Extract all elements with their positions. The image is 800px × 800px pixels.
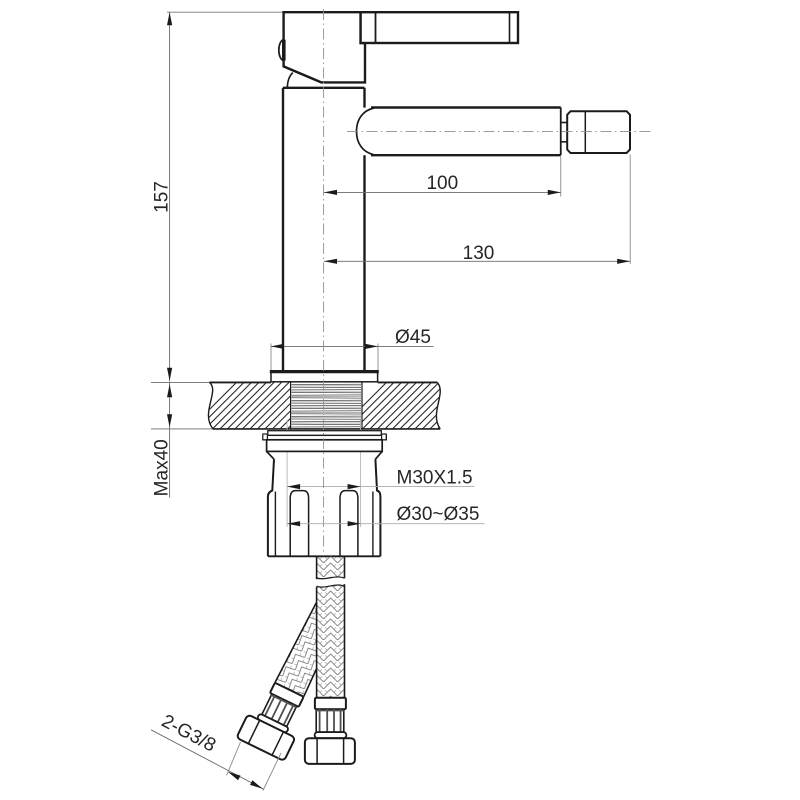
- svg-text:Max40: Max40: [152, 439, 173, 496]
- svg-text:157: 157: [151, 181, 172, 213]
- svg-text:Ø45: Ø45: [395, 327, 431, 348]
- svg-text:100: 100: [426, 173, 458, 194]
- svg-text:130: 130: [463, 243, 495, 264]
- svg-text:M30X1.5: M30X1.5: [397, 468, 473, 489]
- svg-text:Ø30~Ø35: Ø30~Ø35: [397, 504, 480, 525]
